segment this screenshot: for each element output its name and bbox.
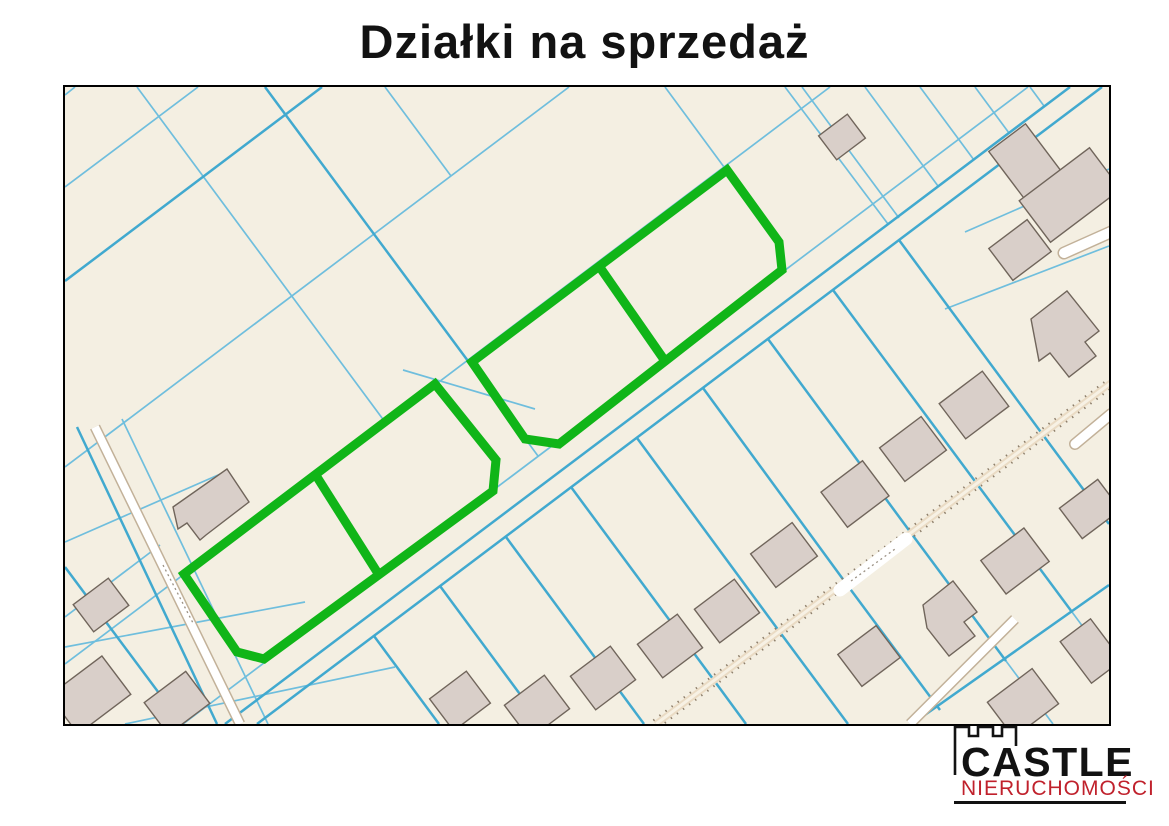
- building-footprint: [987, 669, 1058, 724]
- building-footprint: [880, 417, 947, 482]
- building-footprint-l-shape: [1031, 291, 1099, 377]
- building-footprint: [981, 528, 1049, 594]
- building-footprint-l-shape: [923, 581, 977, 656]
- building-footprint: [73, 578, 129, 632]
- building-footprint: [430, 671, 491, 724]
- building-footprint: [939, 371, 1009, 439]
- building-footprint: [504, 675, 569, 724]
- building-footprint: [637, 614, 702, 678]
- logo-underline: [954, 801, 1126, 804]
- building-footprint: [694, 579, 759, 643]
- building-footprint: [1060, 619, 1109, 683]
- building-footprint: [65, 656, 131, 724]
- building-footprint: [821, 461, 889, 527]
- building-footprint: [1059, 479, 1109, 538]
- plot-divider-group-2: [599, 266, 665, 361]
- agency-logo: CASTLE NIERUCHOMOŚCI: [953, 722, 1131, 822]
- building-footprint: [838, 626, 900, 687]
- logo-subtitle: NIERUCHOMOŚCI: [961, 778, 1155, 799]
- cadastral-map: [63, 85, 1111, 726]
- map-canvas: [65, 87, 1109, 724]
- building-footprint: [819, 114, 866, 160]
- building-footprint: [144, 671, 210, 724]
- plots-for-sale: [184, 170, 782, 659]
- plot-divider-group-1: [317, 477, 379, 575]
- page-title: Działki na sprzedaż: [0, 14, 1169, 69]
